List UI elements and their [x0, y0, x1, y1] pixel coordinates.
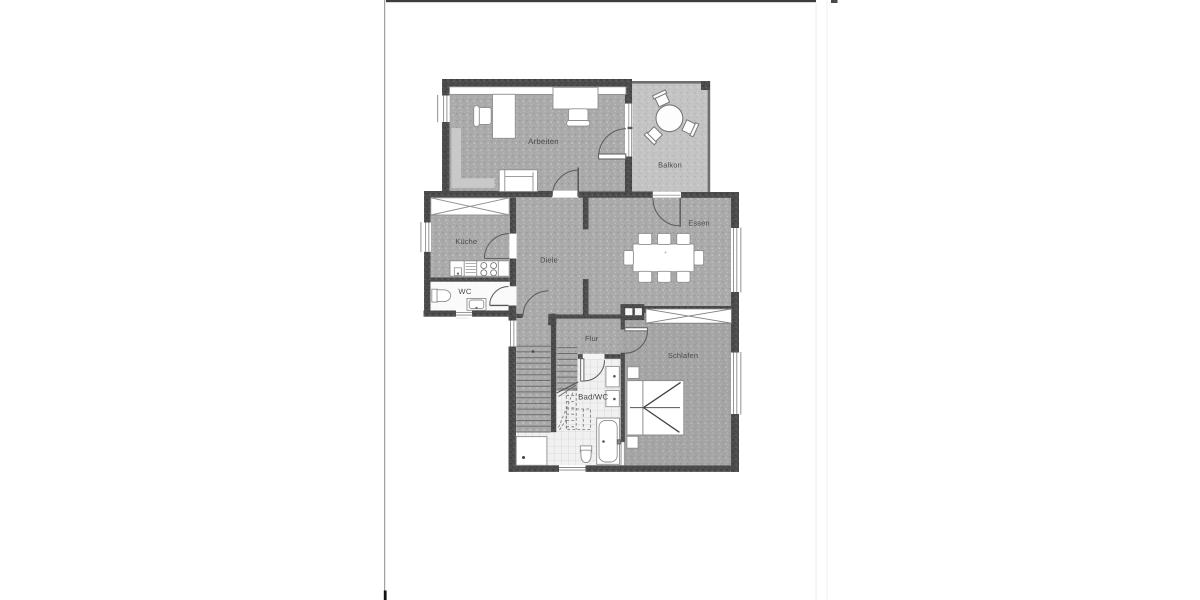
svg-text:Essen: Essen [688, 218, 710, 227]
svg-text:Schlafen: Schlafen [668, 351, 698, 360]
svg-text:Balkon: Balkon [658, 161, 682, 170]
svg-text:Bad/WC: Bad/WC [578, 393, 608, 402]
svg-text:Flur: Flur [585, 334, 599, 343]
svg-text:Diele: Diele [540, 256, 558, 265]
svg-text:WC: WC [458, 287, 471, 296]
svg-text:Küche: Küche [455, 237, 477, 246]
svg-text:Arbeiten: Arbeiten [528, 137, 559, 146]
